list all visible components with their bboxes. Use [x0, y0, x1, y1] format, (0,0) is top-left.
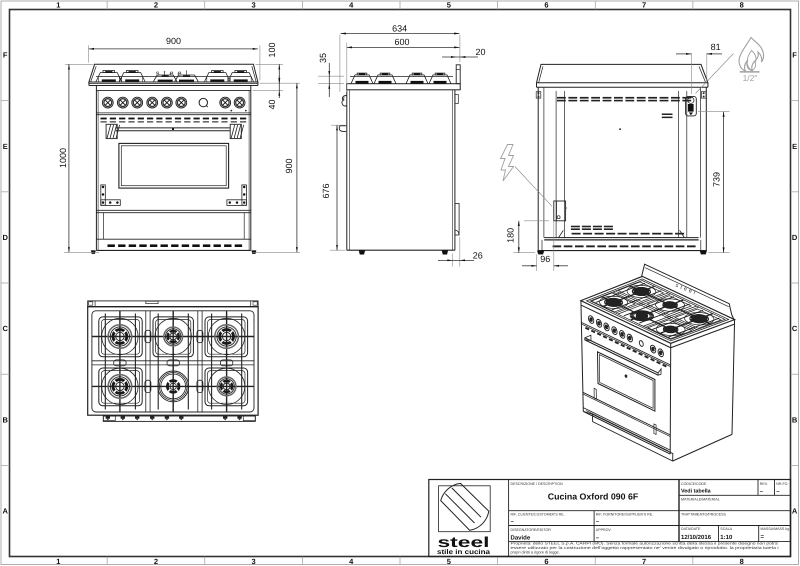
svg-text:stile in cucina: stile in cucina [437, 549, 490, 556]
svg-text:1000: 1000 [58, 148, 68, 168]
svg-text:=: = [761, 534, 765, 540]
svg-text:8: 8 [740, 557, 744, 566]
svg-text:7: 7 [642, 0, 646, 9]
svg-text:E: E [3, 142, 8, 151]
svg-text:A: A [792, 507, 798, 516]
svg-text:F: F [3, 51, 8, 60]
svg-text:A: A [2, 507, 8, 516]
svg-text:180: 180 [505, 228, 515, 243]
svg-text:634: 634 [392, 23, 407, 33]
svg-text:1/2": 1/2" [743, 73, 758, 83]
svg-text:6: 6 [544, 557, 548, 566]
svg-text:96: 96 [540, 254, 550, 264]
svg-text:APPROV.: APPROV. [596, 528, 612, 532]
svg-text:3: 3 [251, 557, 255, 566]
svg-text:propri diritti a rigore di leg: propri diritti a rigore di legge. [511, 550, 560, 555]
svg-text:MASSA/MASS kg: MASSA/MASS kg [761, 527, 790, 531]
svg-text:2: 2 [154, 0, 158, 9]
svg-text:1: 1 [56, 0, 60, 9]
svg-text:100: 100 [267, 42, 277, 57]
svg-text:600: 600 [394, 37, 409, 47]
svg-text:B: B [2, 415, 8, 424]
svg-text:B: B [792, 415, 798, 424]
svg-text:SCALA: SCALA [720, 527, 732, 531]
svg-text:DISEGNATORE/EDITOR: DISEGNATORE/EDITOR [511, 528, 552, 532]
svg-text:40: 40 [267, 99, 277, 109]
svg-text:5: 5 [447, 557, 451, 566]
svg-text:Cucina Oxford 090 6F: Cucina Oxford 090 6F [548, 492, 639, 502]
svg-text:DATA/DATE: DATA/DATE [681, 527, 701, 531]
svg-text:81: 81 [711, 42, 721, 52]
svg-text:F: F [792, 51, 797, 60]
svg-text:REV.: REV. [760, 482, 768, 486]
svg-text:Vedi tabella: Vedi tabella [681, 488, 712, 494]
svg-text:3: 3 [251, 0, 255, 9]
svg-text:C: C [2, 324, 8, 333]
svg-text:26: 26 [473, 251, 483, 261]
svg-text:20: 20 [476, 47, 486, 57]
svg-text:900: 900 [166, 36, 181, 46]
svg-text:D: D [2, 233, 8, 242]
svg-text:6: 6 [544, 0, 548, 9]
svg-text:steel: steel [156, 68, 191, 77]
svg-text:35: 35 [318, 53, 328, 63]
svg-text:676: 676 [321, 183, 331, 198]
svg-text:900: 900 [284, 158, 294, 173]
svg-text:C: C [792, 324, 798, 333]
svg-text:5: 5 [447, 0, 451, 9]
svg-text:CODICE/CODE: CODICE/CODE [681, 482, 707, 486]
svg-text:DESCRIZIONE / DESCRIPTION: DESCRIZIONE / DESCRIPTION [511, 482, 564, 486]
svg-text:MATERIALE/MATERIAL: MATERIALE/MATERIAL [681, 498, 720, 502]
svg-text:D: D [792, 233, 798, 242]
svg-text:1: 1 [56, 557, 60, 566]
svg-text:RIF. FORNITORE/SUPPLIER'S RE.: RIF. FORNITORE/SUPPLIER'S RE. [596, 513, 653, 517]
svg-text:7: 7 [642, 557, 646, 566]
svg-text:8: 8 [740, 0, 744, 9]
svg-text:TRATTAMENTO/PROCESS: TRATTAMENTO/PROCESS [681, 513, 727, 517]
svg-text:E: E [792, 142, 797, 151]
svg-text:NR.FO.: NR.FO. [776, 482, 788, 486]
svg-text:RIF. CLIENTE/CUSTOMER'S RE.: RIF. CLIENTE/CUSTOMER'S RE. [511, 513, 565, 517]
svg-text:2: 2 [154, 557, 158, 566]
svg-text:739: 739 [712, 172, 722, 187]
